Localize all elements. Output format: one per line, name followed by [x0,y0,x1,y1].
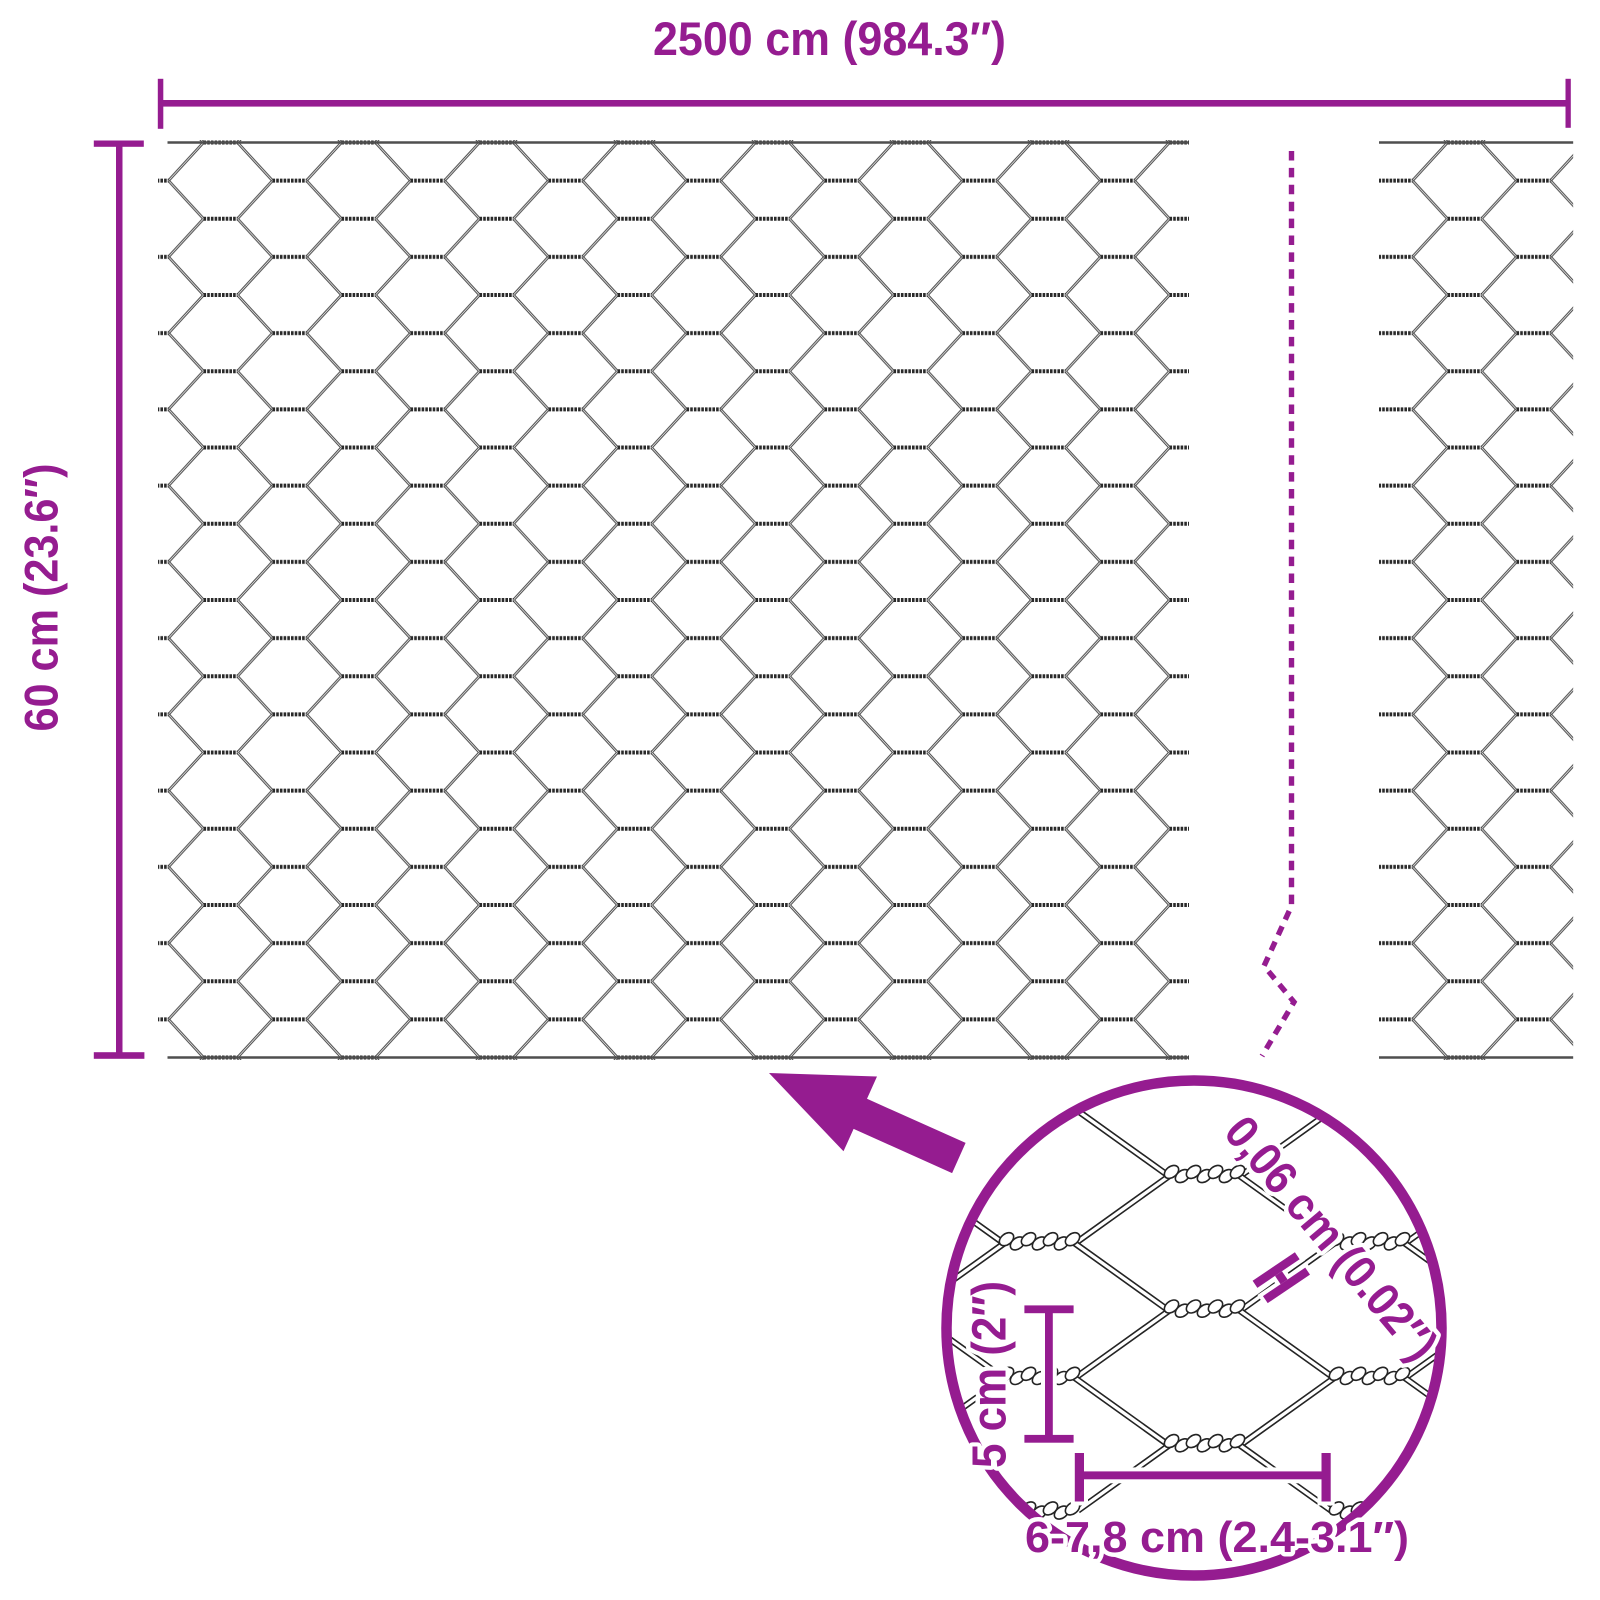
svg-text:5 cm (2″): 5 cm (2″) [964,1281,1017,1468]
svg-text:60 cm (23.6″): 60 cm (23.6″) [15,464,68,732]
svg-text:6-7,8 cm (2.4-3.1″): 6-7,8 cm (2.4-3.1″) [1025,1513,1409,1562]
svg-text:2500 cm (984.3″): 2500 cm (984.3″) [653,12,1006,65]
